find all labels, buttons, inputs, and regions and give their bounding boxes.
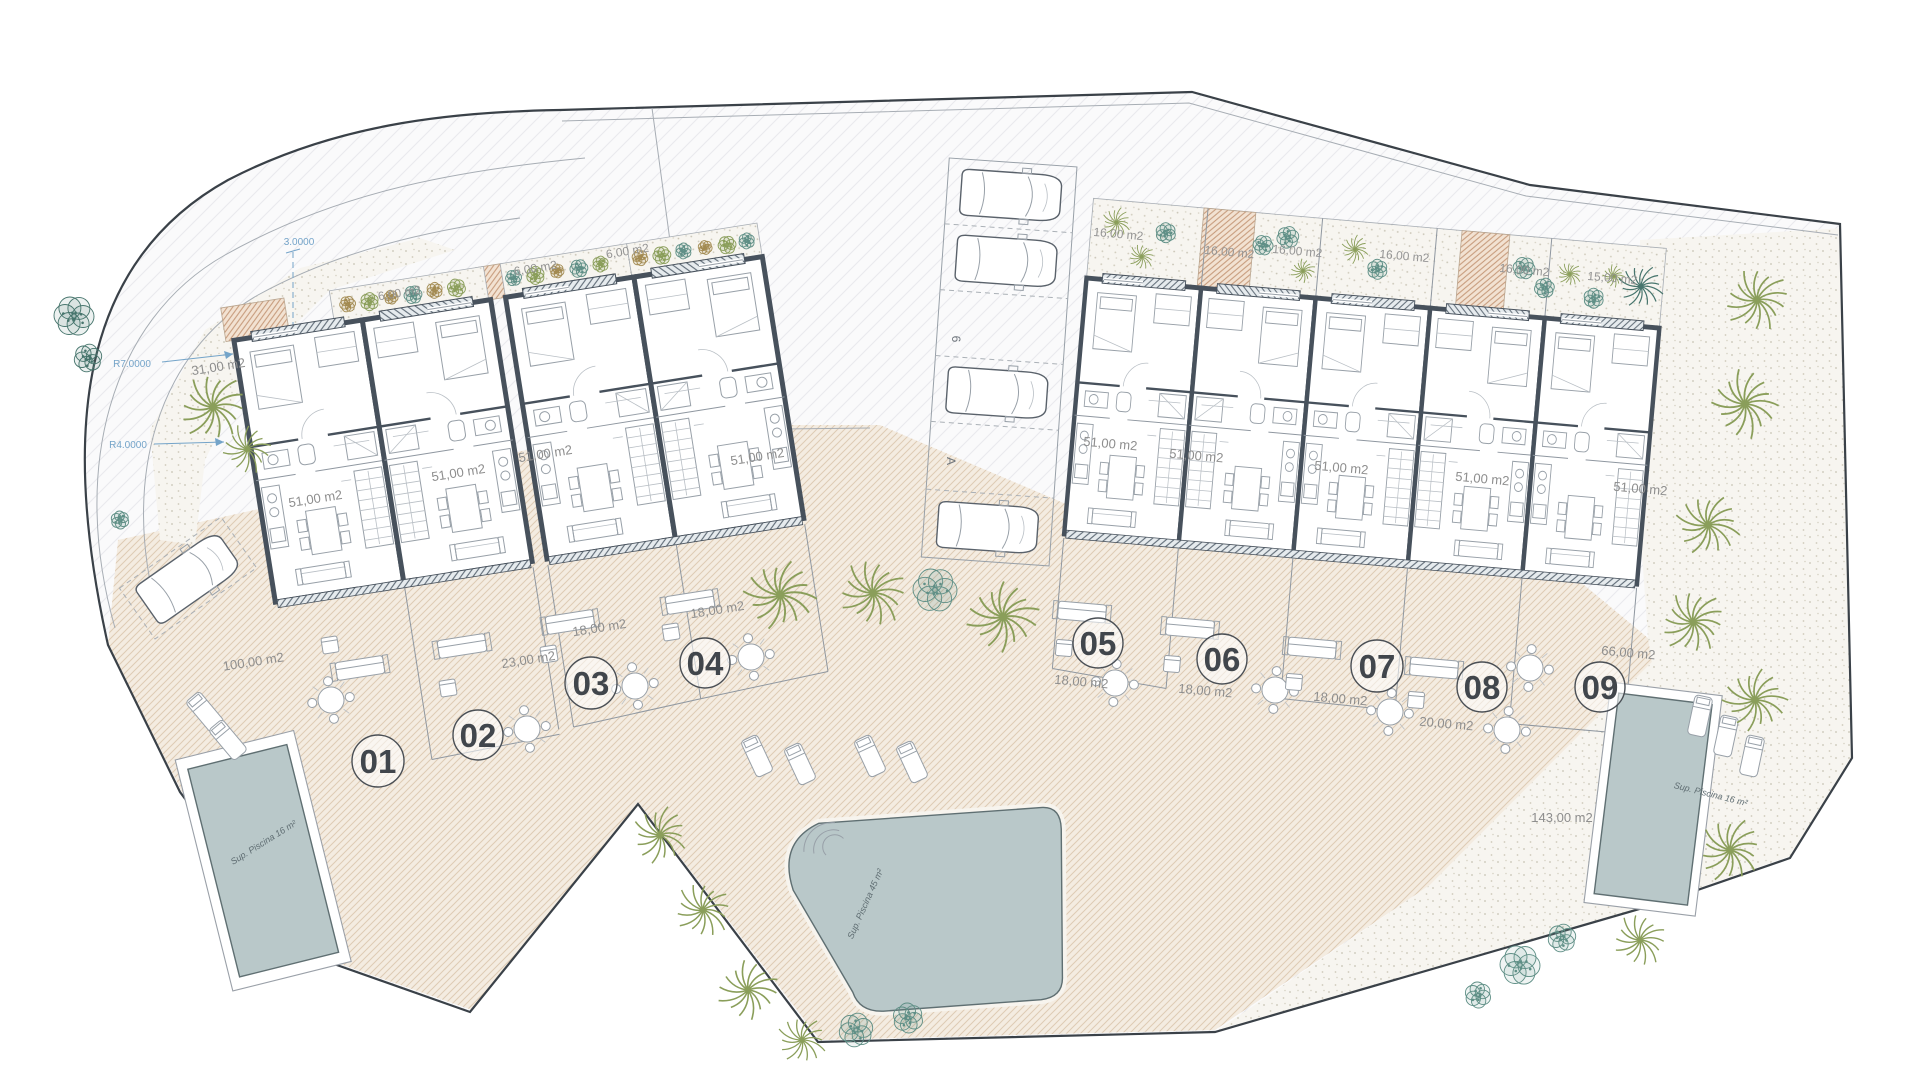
armchair-icon bbox=[662, 623, 680, 641]
unit-03-badge: 03 bbox=[565, 657, 617, 709]
unit-09-building bbox=[1522, 312, 1660, 587]
parking-stall-label: A bbox=[944, 457, 958, 465]
svg-text:03: 03 bbox=[573, 665, 610, 702]
svg-text:02: 02 bbox=[460, 717, 497, 754]
shrub-icon bbox=[1500, 946, 1540, 984]
armchair-icon bbox=[1055, 639, 1072, 656]
armchair-icon bbox=[1407, 691, 1424, 708]
unit-06-badge: 06 bbox=[1197, 634, 1247, 684]
unit-07-badge: 07 bbox=[1351, 640, 1403, 692]
svg-text:01: 01 bbox=[360, 743, 397, 780]
shrub-icon bbox=[894, 1003, 923, 1033]
shrub-icon bbox=[54, 297, 94, 335]
svg-text:04: 04 bbox=[687, 645, 724, 682]
site-plan-drawing: 3.0000 R7.0000 R4.0000 bbox=[0, 0, 1920, 1080]
shrub-icon bbox=[913, 569, 957, 611]
right-garden-label: 143,00 m2 bbox=[1531, 810, 1592, 825]
svg-text:07: 07 bbox=[1359, 648, 1396, 685]
armchair-icon bbox=[1163, 655, 1180, 672]
armchair-icon bbox=[321, 636, 339, 654]
unit-01-badge: 01 bbox=[352, 735, 404, 787]
palm-tree-icon bbox=[1616, 915, 1664, 964]
unit-05-badge: 05 bbox=[1073, 618, 1123, 668]
svg-text:05: 05 bbox=[1080, 625, 1117, 662]
dimension-r7: R7.0000 bbox=[113, 359, 151, 370]
unit-02-badge: 02 bbox=[453, 710, 503, 760]
svg-text:09: 09 bbox=[1582, 669, 1619, 706]
armchair-icon bbox=[439, 679, 457, 697]
dimension-3m: 3.0000 bbox=[284, 237, 315, 248]
unit-09-badge: 09 bbox=[1575, 662, 1625, 712]
shrub-icon bbox=[111, 511, 128, 529]
svg-text:08: 08 bbox=[1464, 669, 1501, 706]
site-plan-canvas: 3.0000 R7.0000 R4.0000 bbox=[0, 0, 1920, 1080]
unit-08-badge: 08 bbox=[1457, 662, 1507, 712]
shrub-icon bbox=[1465, 982, 1490, 1008]
unit-04-badge: 04 bbox=[680, 638, 730, 688]
dimension-r4: R4.0000 bbox=[109, 440, 147, 451]
armchair-icon bbox=[1285, 673, 1302, 690]
svg-text:06: 06 bbox=[1204, 641, 1241, 678]
parking-stall-label: 6 bbox=[949, 336, 963, 343]
